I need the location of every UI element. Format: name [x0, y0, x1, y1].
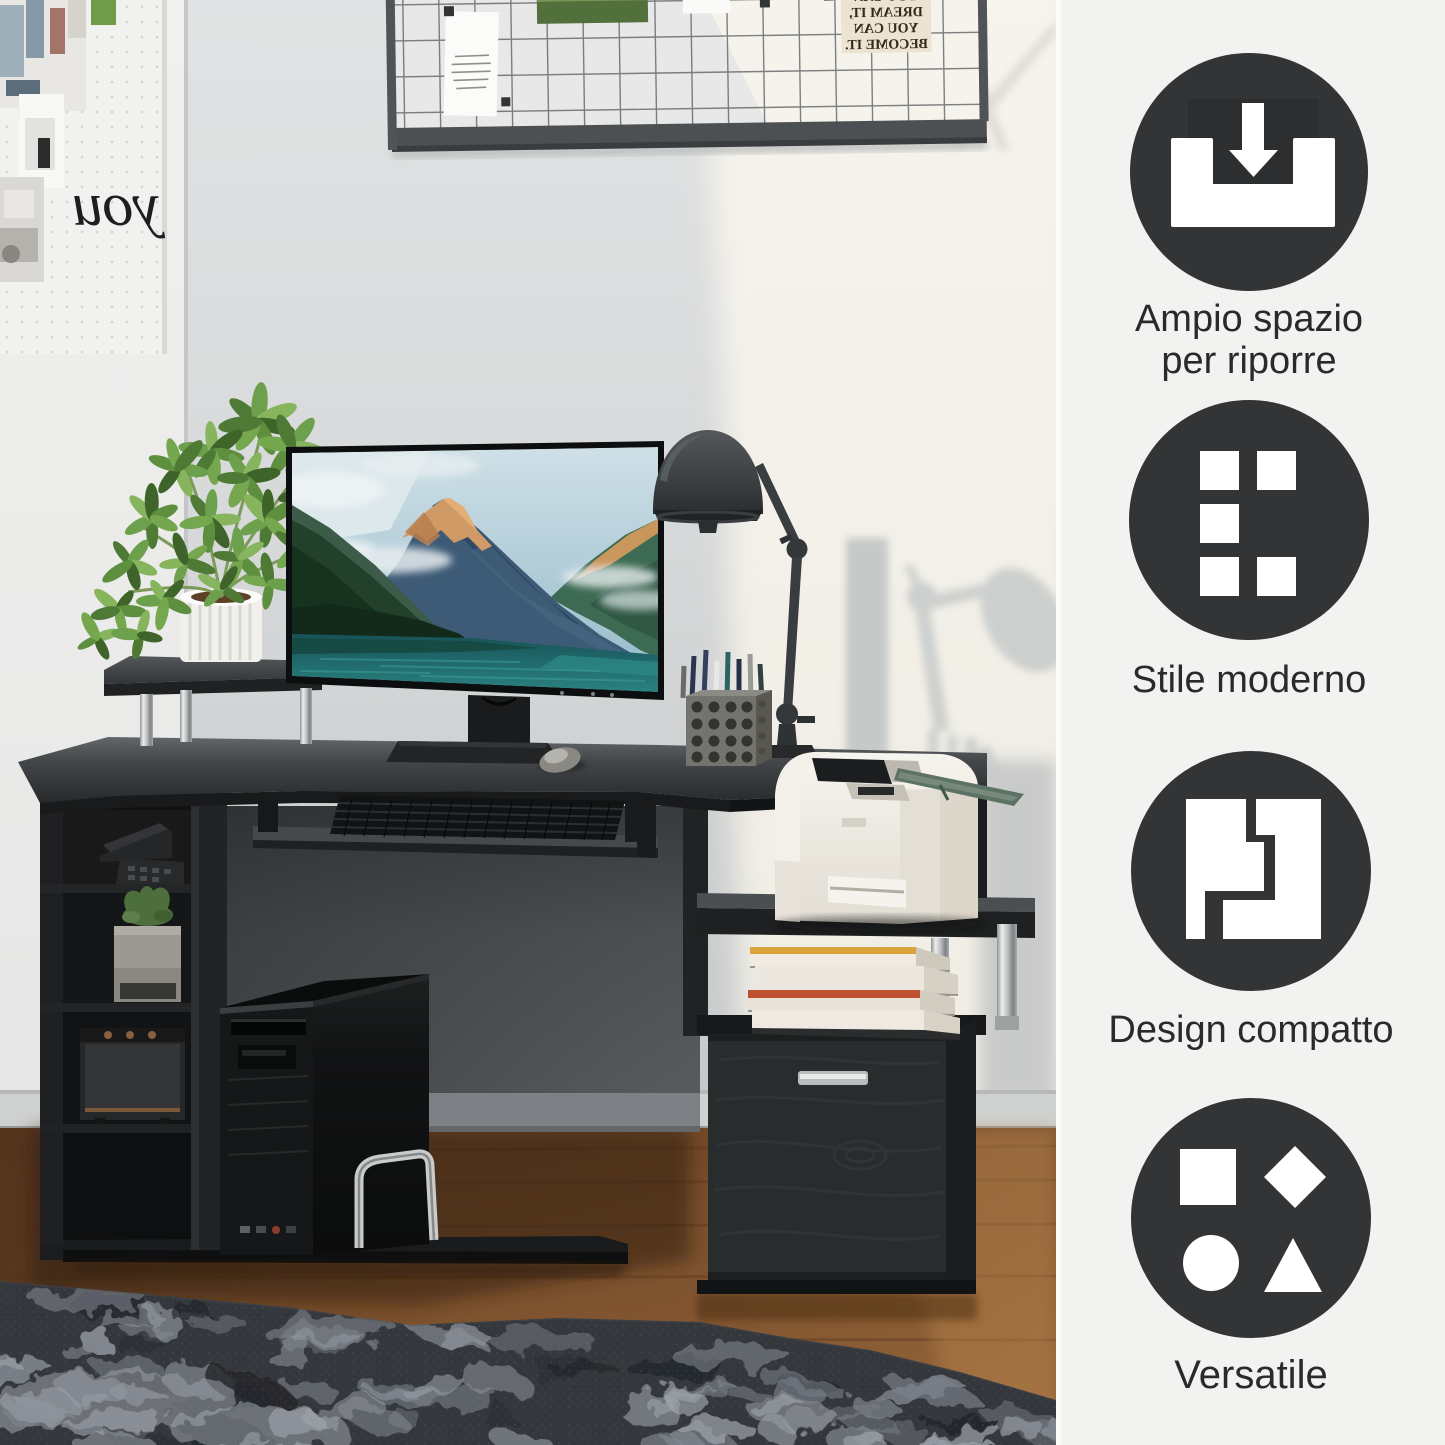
svg-text:Stile moderno: Stile moderno [1132, 659, 1366, 701]
svg-text:Versatile: Versatile [1174, 1353, 1327, 1397]
svg-text:DREAM IT,: DREAM IT, [849, 5, 923, 21]
svg-text:Design compatto: Design compatto [1108, 1009, 1393, 1051]
svg-text:you: you [72, 171, 166, 239]
svg-text:YOU CAN: YOU CAN [854, 21, 919, 37]
svg-text:Ampio spazio: Ampio spazio [1135, 298, 1363, 340]
svg-text:per riporre: per riporre [1161, 340, 1336, 382]
svg-text:BECOME IT.: BECOME IT. [845, 37, 928, 53]
